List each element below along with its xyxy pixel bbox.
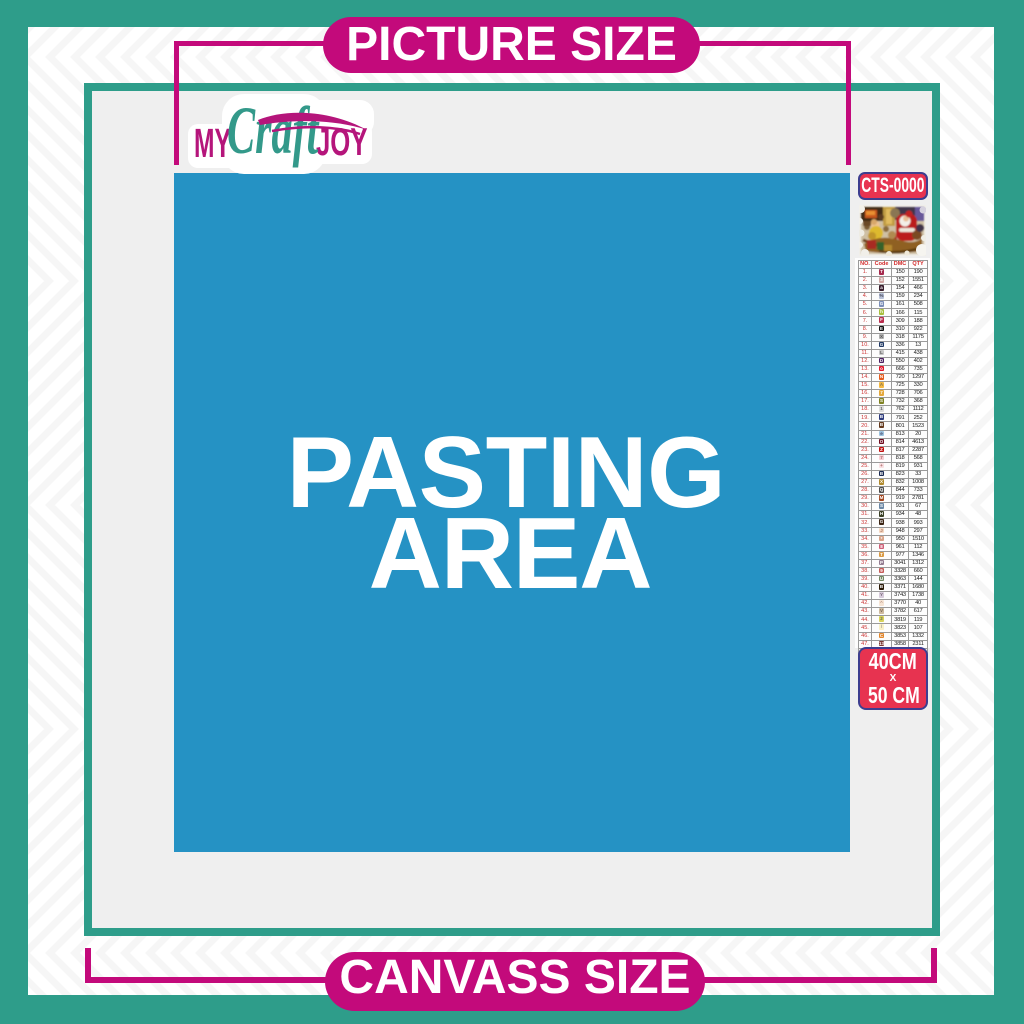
svg-text:MY: MY	[194, 121, 231, 167]
